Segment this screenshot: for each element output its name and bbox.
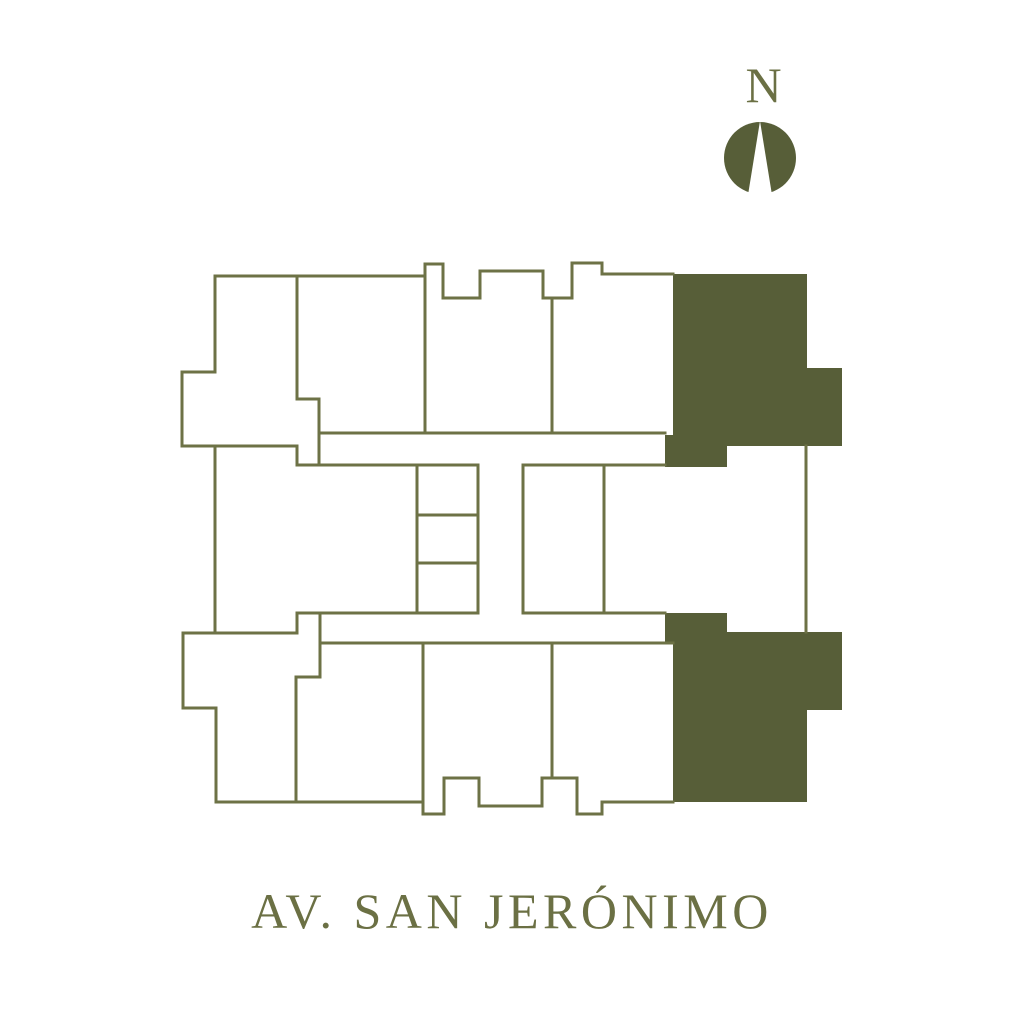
highlighted-units (665, 274, 842, 802)
wall-line (297, 276, 319, 465)
street-label: AV. SAN JERÓNIMO (0, 886, 1024, 936)
floor-plan-svg (0, 0, 1024, 1024)
wall-line (216, 778, 673, 814)
wall-line (182, 276, 297, 465)
north-label: N (745, 60, 782, 110)
wall-line (215, 263, 673, 298)
wall-line (183, 633, 216, 802)
wall-line (296, 613, 320, 802)
site-plan-canvas: N AV. SAN JERÓNIMO (0, 0, 1024, 1024)
highlight-unit-top-right[interactable] (665, 274, 842, 467)
compass-rose (724, 121, 796, 195)
highlight-unit-bottom-right[interactable] (665, 613, 842, 802)
